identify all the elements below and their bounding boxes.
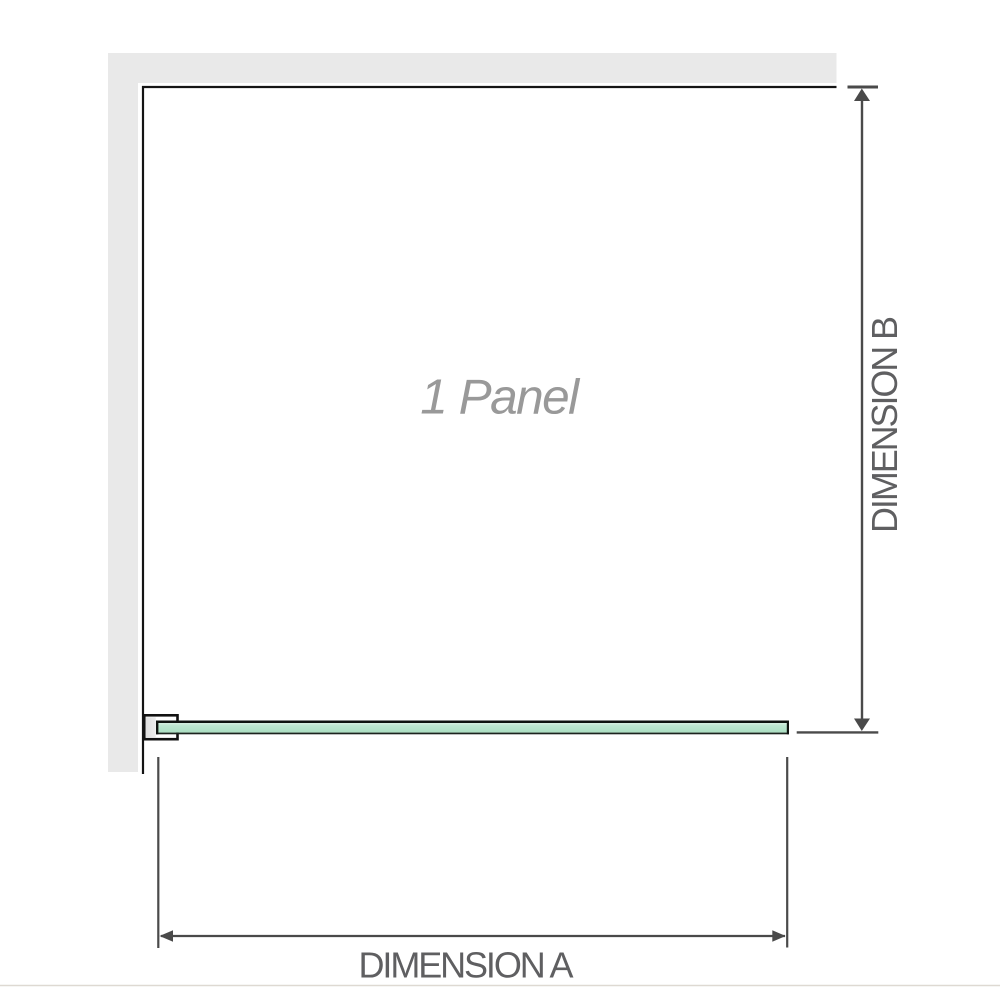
svg-text:1 Panel: 1 Panel — [420, 370, 581, 425]
svg-text:DIMENSION A: DIMENSION A — [359, 945, 574, 986]
svg-text:DIMENSION B: DIMENSION B — [864, 317, 905, 533]
